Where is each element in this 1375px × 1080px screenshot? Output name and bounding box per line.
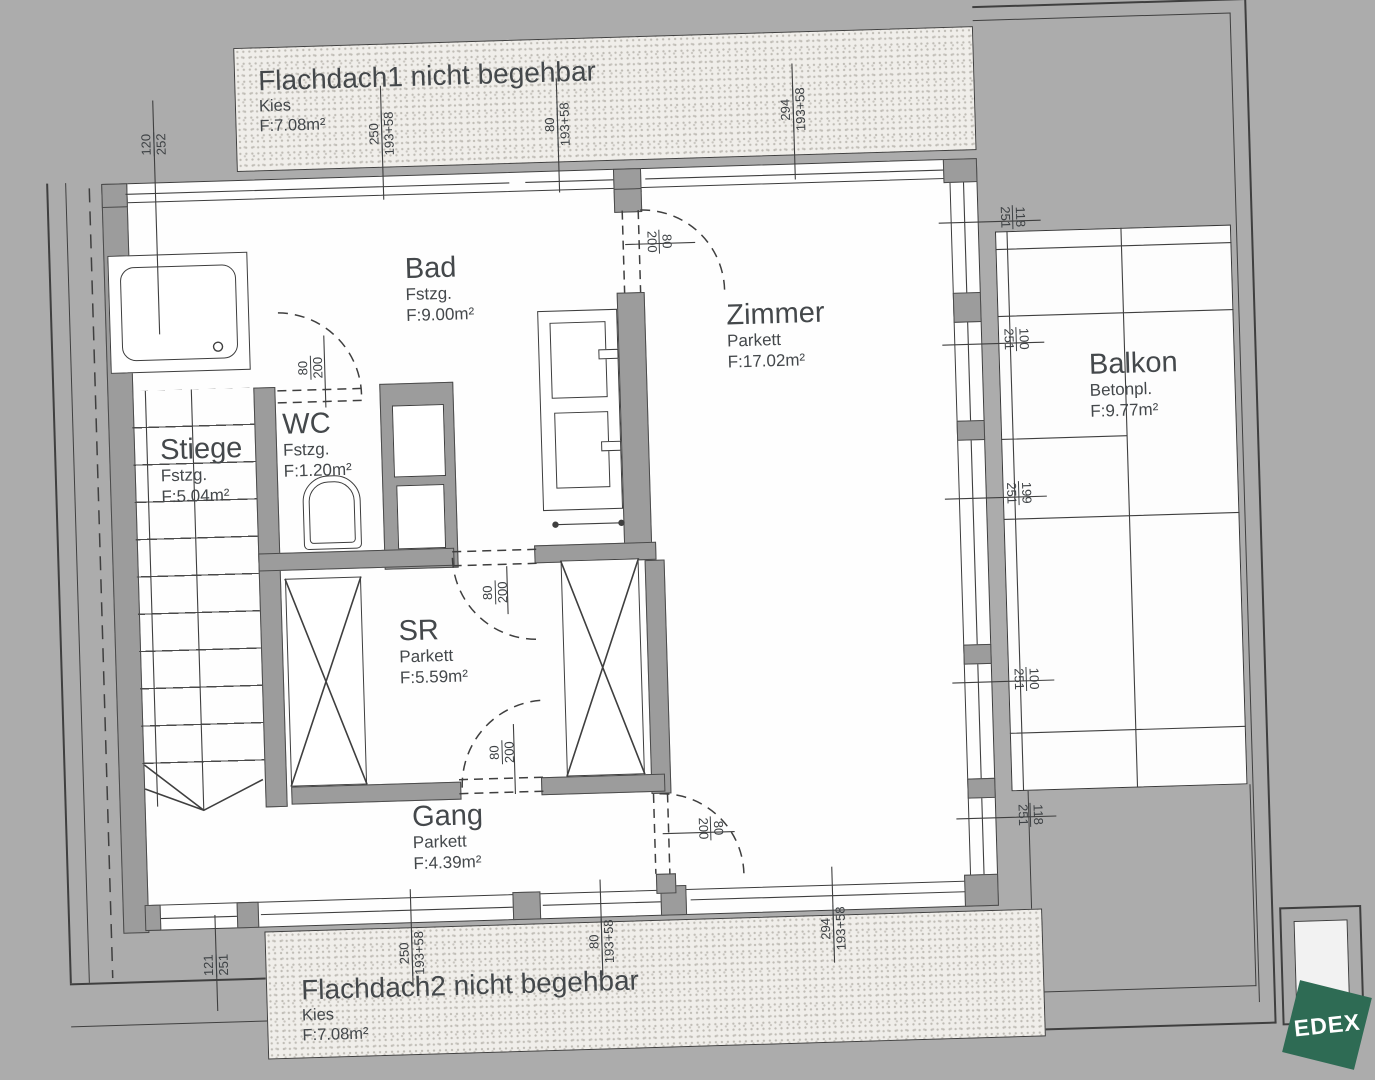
- faucet-1: [598, 349, 618, 360]
- stiege-name: Stiege: [160, 432, 243, 467]
- wall-bad-zimmer-stub: [614, 188, 643, 213]
- gang-material: Parkett: [413, 831, 485, 853]
- dim-door-sr-bottom: 80200: [487, 740, 517, 765]
- bad-material: Fstzg.: [405, 284, 474, 306]
- bad-area: F:9.00m²: [406, 304, 475, 326]
- pier-top-left: [101, 183, 128, 208]
- wc-area: F:1.20m²: [283, 459, 352, 481]
- pier-bottom-1: [145, 905, 162, 931]
- dim-right-118b: 118251: [1015, 802, 1045, 827]
- pier-right-4: [967, 778, 996, 799]
- washer-box-1: [392, 404, 446, 478]
- dim-right-199: 199251: [1004, 481, 1034, 506]
- dim-bottom-80: 80193+58: [587, 918, 617, 965]
- zimmer-name: Zimmer: [726, 297, 825, 332]
- washer-box-2: [396, 484, 446, 549]
- stiege-area: F:5.04m²: [161, 484, 244, 506]
- pier-right-3: [963, 644, 992, 665]
- gang-name: Gang: [412, 799, 484, 834]
- bad-name: Bad: [404, 251, 473, 285]
- balkon-slab: [995, 225, 1248, 792]
- pier-bottom-2: [237, 902, 260, 929]
- room-label-wc: WC Fstzg. F:1.20m²: [282, 407, 352, 482]
- sr-area: F:5.59m²: [400, 666, 469, 688]
- pier-bottom-3: [512, 891, 541, 920]
- gang-area: F:4.39m²: [413, 852, 485, 874]
- dim-top-80: 80193+58: [542, 101, 572, 148]
- dim-door-wc: 80200: [296, 356, 326, 381]
- zimmer-area: F:17.02m²: [727, 349, 826, 372]
- faucet-2: [601, 441, 621, 452]
- washbasin-1: [549, 321, 607, 399]
- dim-bottom-250: 250193+58: [397, 930, 427, 977]
- flachdach2-label: Flachdach2 nicht begehbar Kies F:7.08m²: [301, 964, 641, 1045]
- dim-door-gang: 80200: [696, 816, 726, 841]
- dim-120-252: 120252: [139, 132, 169, 157]
- room-label-stiege: Stiege Fstzg. F:5.04m²: [160, 432, 244, 507]
- dim-121-251: 121251: [202, 953, 232, 978]
- dim-door-bad-zimmer: 80200: [644, 229, 674, 254]
- balkon-area: F:9.77m²: [1090, 399, 1179, 422]
- boundary-left-bottom: [70, 978, 267, 1028]
- dim-top-294: 294193+58: [778, 86, 808, 133]
- room-label-sr: SR Parkett F:5.59m²: [398, 613, 468, 688]
- boundary-left-outer: [46, 183, 90, 983]
- room-label-balkon: Balkon Betonpl. F:9.77m²: [1088, 346, 1179, 421]
- wc-name: WC: [282, 407, 351, 441]
- balkon-name: Balkon: [1088, 346, 1178, 381]
- room-label-zimmer: Zimmer Parkett F:17.02m²: [726, 297, 826, 372]
- sr-material: Parkett: [399, 646, 468, 668]
- balkon-material: Betonpl.: [1089, 379, 1178, 402]
- floorplan-canvas: Flachdach1 nicht begehbar Kies F:7.08m² …: [0, 0, 1375, 1080]
- wall-gang-door-stub: [656, 873, 677, 894]
- dim-bottom-294: 294193+58: [818, 905, 848, 952]
- pier-top-right: [943, 158, 978, 183]
- room-label-gang: Gang Parkett F:4.39m²: [412, 799, 485, 874]
- room-label-bad: Bad Fstzg. F:9.00m²: [404, 251, 474, 326]
- dim-right-118a: 118251: [998, 205, 1028, 230]
- toilet-inner: [308, 481, 356, 544]
- dim-right-100b: 100251: [1011, 667, 1041, 692]
- wall-sr-bottom-right: [541, 774, 665, 796]
- wardrobe-right: [561, 558, 645, 776]
- wc-material: Fstzg.: [283, 439, 352, 461]
- pier-right-1: [953, 292, 982, 323]
- pier-bottom-right: [964, 874, 999, 907]
- sr-name: SR: [398, 613, 467, 647]
- shower-tray: [120, 264, 239, 361]
- edex-logo-text: EDEX: [1292, 1008, 1361, 1042]
- dim-door-sr-top: 80200: [481, 580, 511, 605]
- dim-top-250: 250193+58: [367, 110, 397, 157]
- dim-right-100a: 100251: [1001, 327, 1031, 352]
- wardrobe-left: [285, 577, 367, 787]
- pier-right-2: [957, 420, 986, 441]
- boundary-below-balcony: [1028, 784, 1257, 993]
- plan-tilt-wrapper: Flachdach1 nicht begehbar Kies F:7.08m² …: [0, 0, 1375, 1080]
- stiege-material: Fstzg.: [161, 464, 244, 486]
